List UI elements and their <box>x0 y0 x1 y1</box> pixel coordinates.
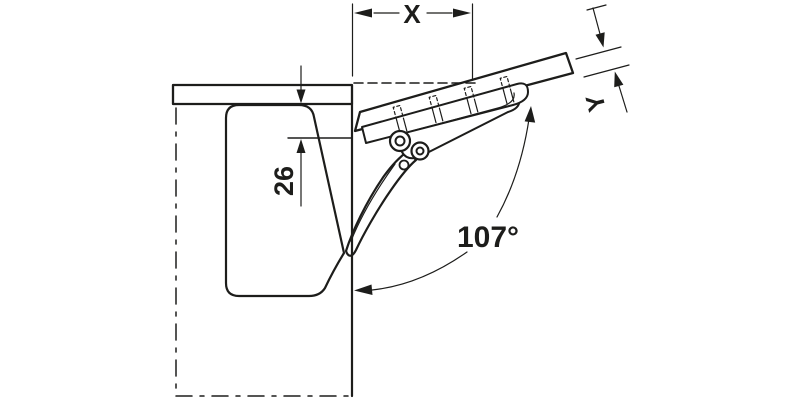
arc-upper <box>497 112 530 217</box>
opening-angle-label: 107° <box>457 221 519 254</box>
dimension-line <box>593 8 600 34</box>
arrowhead-right <box>453 9 471 18</box>
arrowhead-left <box>354 9 372 18</box>
rivet-large <box>390 131 410 151</box>
technical-drawing: X 26 Y 107° <box>0 0 800 400</box>
flap-fitting-installation-diagram: X 26 Y 107° <box>0 0 800 400</box>
dimension-y-label: Y <box>581 91 612 114</box>
arrowhead-up <box>525 106 536 123</box>
arrowhead-left <box>354 285 373 296</box>
extension-tick <box>587 5 606 10</box>
arc-lower <box>372 252 467 290</box>
dimension-x-label: X <box>403 0 421 29</box>
cabinet-top-panel <box>173 85 352 104</box>
cabinet-carcass <box>173 85 352 396</box>
extension-line <box>576 47 621 59</box>
extension-line <box>584 65 629 77</box>
dimension-line <box>619 86 627 112</box>
rivet-small <box>412 143 429 160</box>
pivot-pin <box>400 161 409 170</box>
fitting-housing-outline <box>226 105 344 296</box>
arrowhead-down <box>596 32 605 47</box>
arrowhead-up <box>614 72 623 88</box>
dimension-26-label: 26 <box>269 166 299 196</box>
